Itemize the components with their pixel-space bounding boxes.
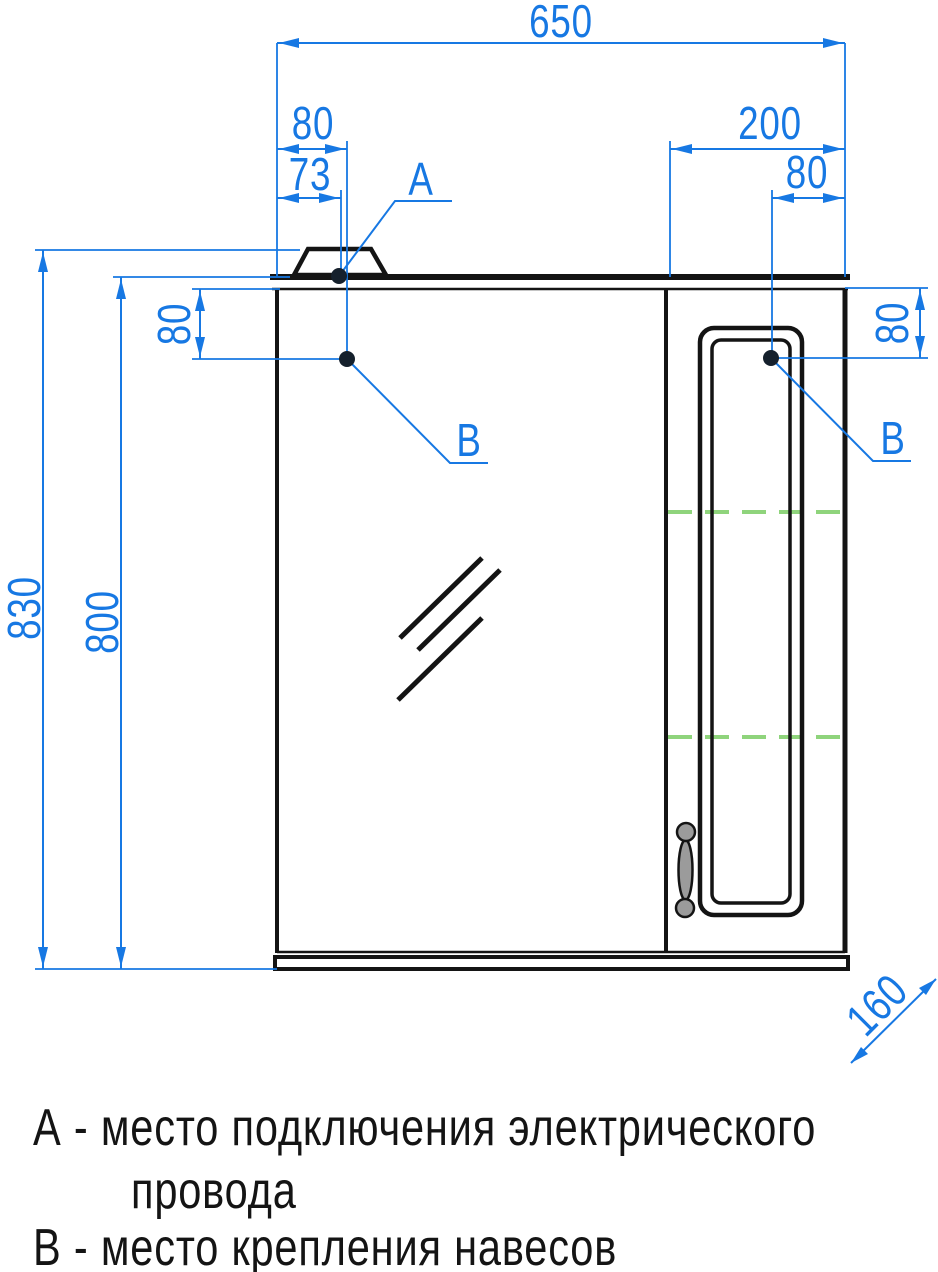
handle-knob-top [677, 823, 695, 841]
dim-value-80: 80 [786, 146, 829, 198]
legend-line-1: А - место подключения электрического [33, 1098, 816, 1157]
point-b-left-dot [339, 351, 355, 367]
dim-left-hinge-drop: 80 [148, 289, 347, 359]
arrowhead-left [279, 38, 299, 48]
handle-knob-bottom [676, 899, 694, 917]
arrowhead-left [672, 144, 692, 154]
point-b-left-label: В [456, 414, 481, 466]
dim-value-160: 160 [836, 964, 918, 1046]
dim-value-80: 80 [866, 302, 918, 345]
bottom-shelf-bar [275, 957, 848, 969]
legend-line-3: В - место крепления навесов [33, 1218, 617, 1272]
dim-right-hinge-drop: 80 [771, 288, 928, 358]
dim-value-800: 800 [76, 590, 128, 654]
cabinet-outline [270, 249, 850, 969]
dim-value-200: 200 [738, 97, 802, 149]
door-handle [676, 823, 695, 917]
dim-left-hinge-offset: 80 [277, 97, 347, 359]
point-a-label: А [408, 153, 433, 205]
legend-line-2: провода [131, 1161, 297, 1220]
leader-point-b-left: В [347, 359, 488, 466]
dim-value-73: 73 [289, 148, 332, 200]
door-panel-inner [712, 340, 790, 903]
mirror-hatch [398, 558, 500, 700]
dim-total-height: 830 [0, 250, 300, 969]
technical-drawing-mirror-cabinet: 650 80 73 200 [0, 0, 938, 1272]
arrowhead-top [38, 252, 48, 272]
point-b-right-dot [763, 350, 779, 366]
arrowhead-right [823, 38, 843, 48]
arrowhead-bottom [38, 947, 48, 967]
shelf-lines [668, 512, 840, 737]
point-b-right-label: В [880, 412, 905, 464]
dim-value-830: 830 [0, 576, 50, 640]
dim-value-80: 80 [148, 303, 200, 346]
leader-point-b-right: В [771, 358, 911, 464]
legend: А - место подключения электрического про… [33, 1098, 816, 1272]
door-panel-outer [700, 328, 802, 915]
point-a-dot [331, 268, 347, 284]
arrowhead-top [116, 279, 126, 299]
dim-body-height: 800 [76, 277, 290, 969]
dimensions: 650 80 73 200 [0, 0, 936, 1063]
dim-depth: 160 [836, 964, 936, 1063]
dim-value-650: 650 [529, 0, 593, 47]
handle-spindle [679, 840, 693, 900]
dim-value-80: 80 [292, 97, 335, 149]
arrowhead-bottom [116, 947, 126, 967]
